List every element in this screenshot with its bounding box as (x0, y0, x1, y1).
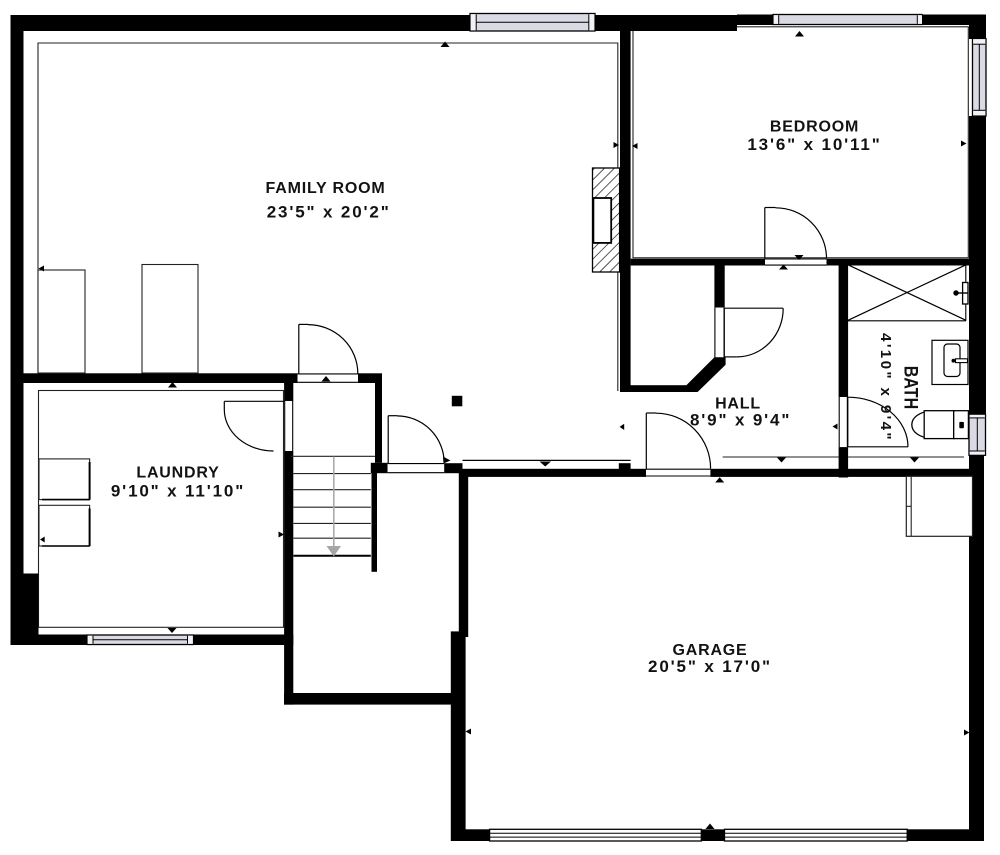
svg-text:23'5" x 20'2": 23'5" x 20'2" (267, 203, 391, 222)
svg-text:BATH: BATH (900, 366, 922, 409)
svg-text:13'6" x 10'11": 13'6" x 10'11" (747, 135, 881, 154)
svg-text:20'5" x 17'0": 20'5" x 17'0" (648, 657, 772, 676)
svg-text:FAMILY ROOM: FAMILY ROOM (266, 180, 386, 197)
svg-text:8'9" x 9'4": 8'9" x 9'4" (690, 411, 791, 430)
svg-text:9'10" x 11'10": 9'10" x 11'10" (111, 481, 245, 500)
svg-text:BEDROOM: BEDROOM (770, 119, 859, 136)
svg-text:4'10" x 9'4": 4'10" x 9'4" (877, 333, 894, 442)
svg-text:LAUNDRY: LAUNDRY (136, 465, 219, 482)
